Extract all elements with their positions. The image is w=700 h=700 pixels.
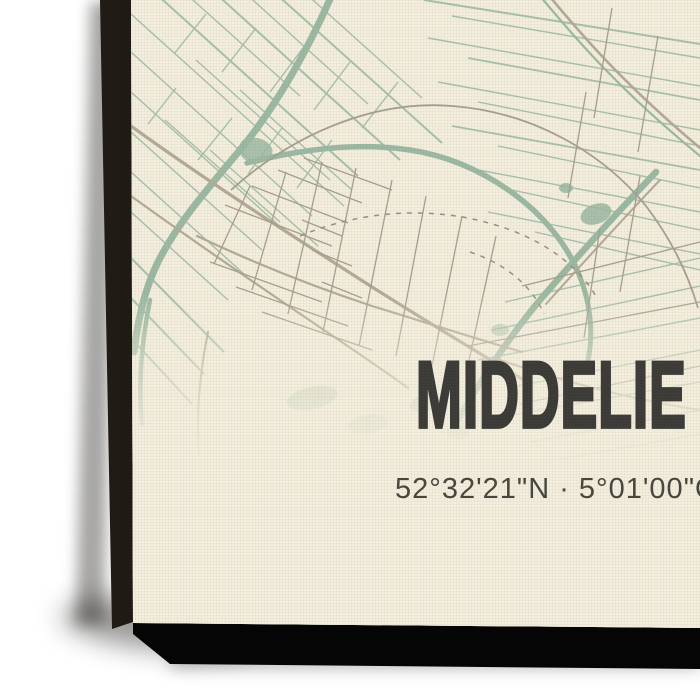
- map-title: MIDDELIE: [416, 349, 687, 443]
- map-coordinates: 52°32'21"N · 5°01'00"O: [395, 475, 700, 504]
- product-photo: MIDDELIE 52°32'21"N · 5°01'00"O: [0, 0, 700, 700]
